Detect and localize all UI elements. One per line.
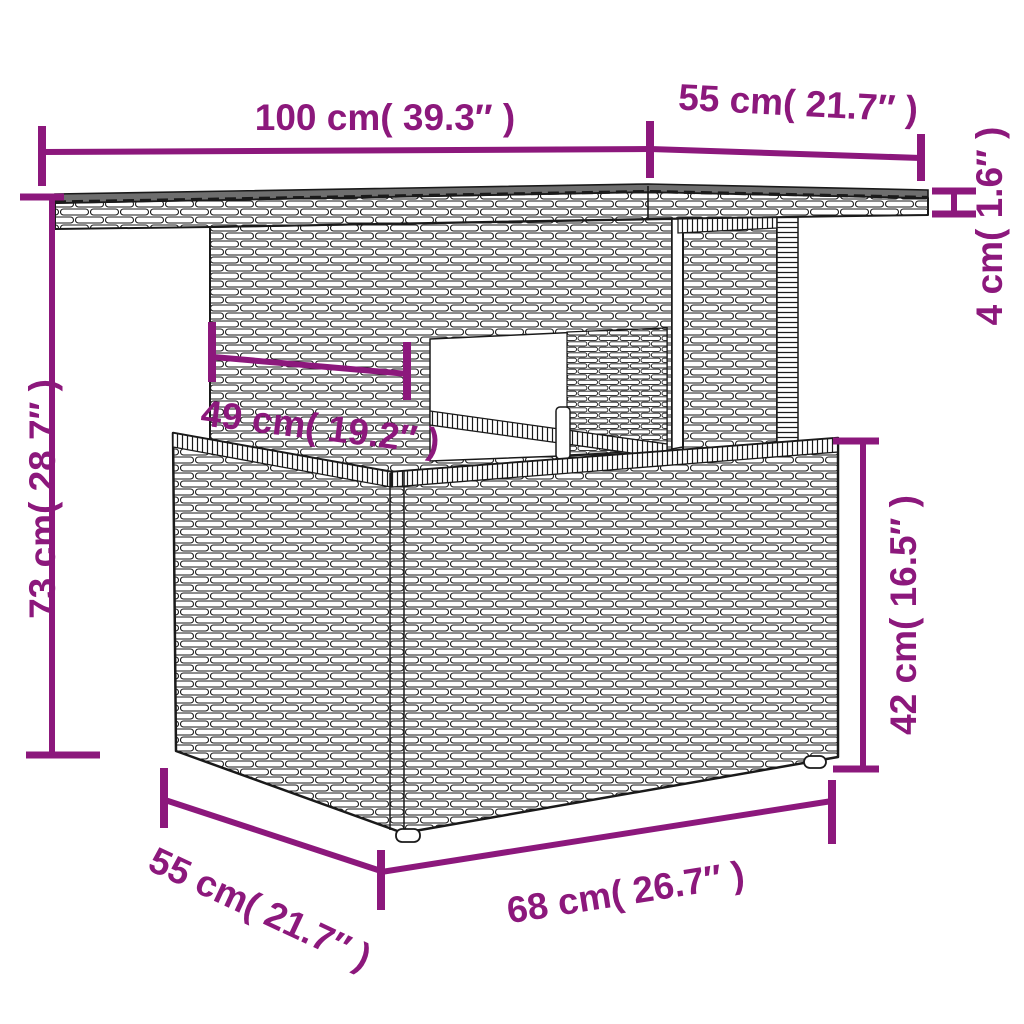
base-foot-right	[804, 756, 826, 768]
base-body	[173, 433, 838, 833]
dim-top-length: 100 cm( 39.3″ )	[42, 97, 650, 186]
dim-base-height: 42 cm( 16.5″ )	[833, 441, 924, 769]
dim-base-height-label: 42 cm( 16.5″ )	[883, 495, 924, 735]
diagram-canvas: 100 cm( 39.3″ ) 55 cm( 21.7″ ) 4 cm( 1.6…	[0, 0, 1024, 1024]
base-inner-post	[556, 407, 570, 459]
dim-top-thickness: 4 cm( 1.6″ )	[932, 127, 1010, 326]
dim-top-depth-line	[650, 149, 921, 158]
base	[173, 433, 838, 842]
dim-base-length-label: 68 cm( 26.7″ )	[504, 853, 747, 931]
dim-top-length-label: 100 cm( 39.3″ )	[255, 97, 515, 138]
dim-total-height-label: 73 cm( 28.7″ )	[22, 379, 63, 619]
base-foot-front	[396, 829, 420, 842]
product-dimension-diagram: 100 cm( 39.3″ ) 55 cm( 21.7″ ) 4 cm( 1.6…	[0, 0, 1024, 1024]
dim-top-depth: 55 cm( 21.7″ )	[650, 77, 921, 181]
dim-top-length-line	[42, 149, 650, 152]
dim-top-thickness-label: 4 cm( 1.6″ )	[969, 127, 1010, 326]
pedestal-side-face	[683, 215, 777, 451]
pedestal-right-column	[777, 213, 798, 444]
dim-total-height: 73 cm( 28.7″ )	[20, 197, 100, 755]
pedestal-corner-strip	[672, 219, 683, 449]
dim-top-depth-label: 55 cm( 21.7″ )	[677, 77, 919, 130]
